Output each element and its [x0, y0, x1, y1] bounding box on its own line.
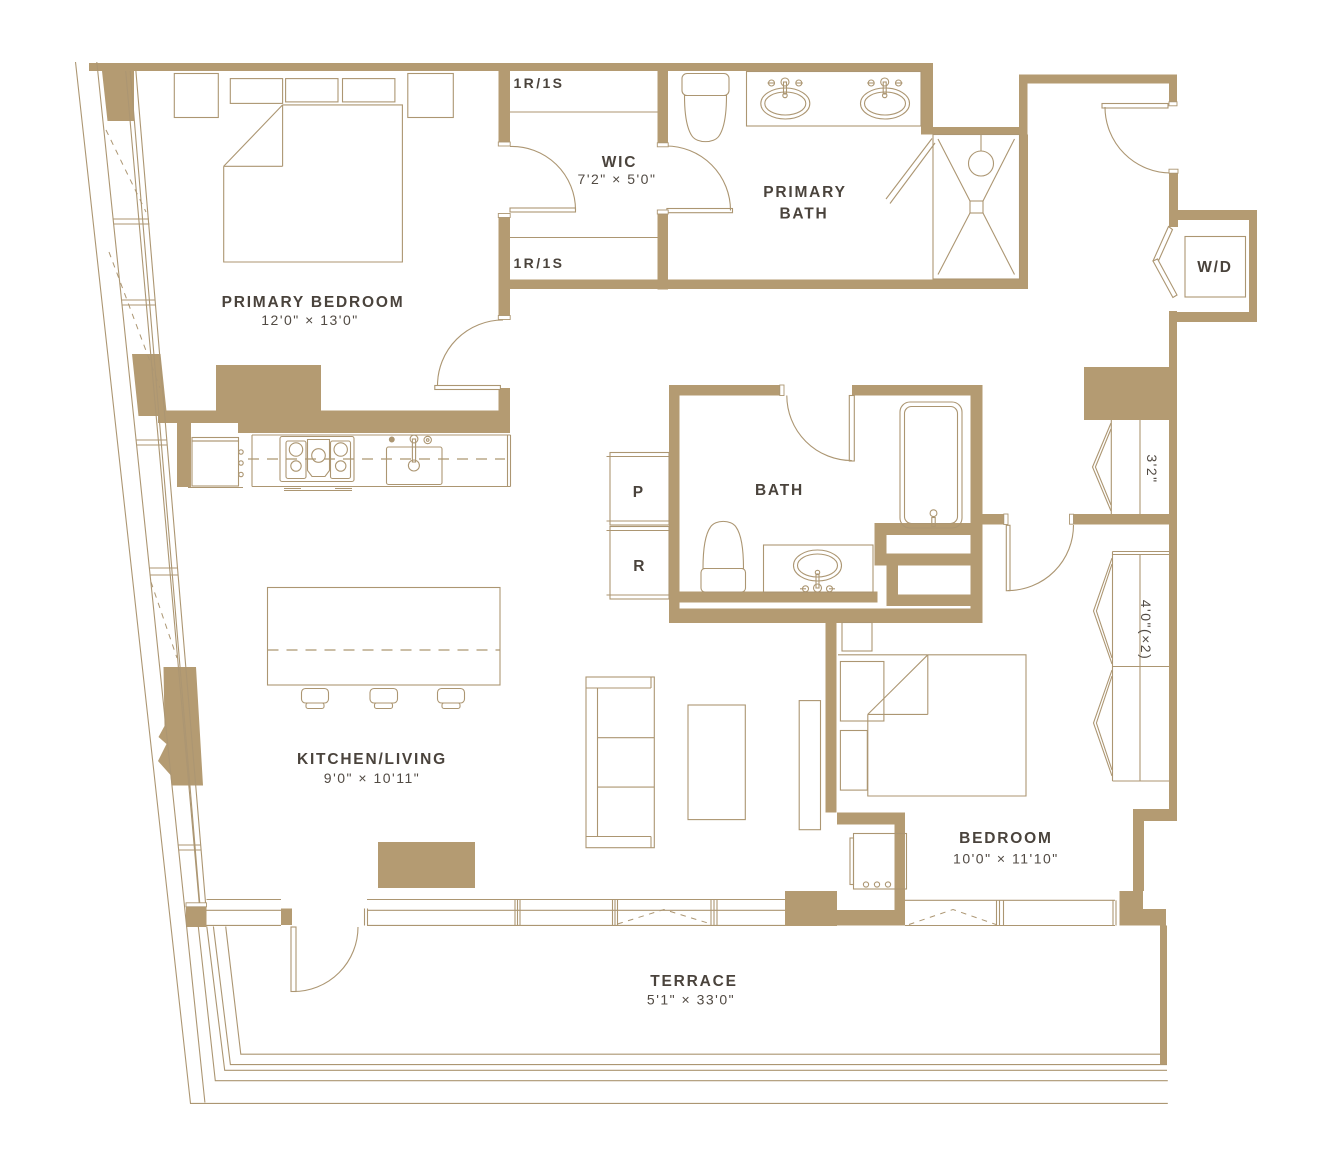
- svg-text:9'0" × 10'11": 9'0" × 10'11": [324, 770, 420, 786]
- svg-text:5'1" × 33'0": 5'1" × 33'0": [647, 992, 735, 1008]
- svg-text:PRIMARY: PRIMARY: [763, 184, 847, 201]
- svg-text:7'2" × 5'0": 7'2" × 5'0": [578, 171, 657, 187]
- svg-text:12'0" × 13'0": 12'0" × 13'0": [261, 312, 358, 328]
- svg-text:1R/1S: 1R/1S: [514, 255, 565, 271]
- svg-text:4'0"(×2): 4'0"(×2): [1138, 600, 1154, 661]
- svg-text:R: R: [633, 558, 646, 575]
- svg-text:WIC: WIC: [602, 154, 638, 171]
- svg-text:1R/1S: 1R/1S: [514, 75, 565, 91]
- svg-text:P: P: [633, 484, 645, 501]
- svg-text:PRIMARY BEDROOM: PRIMARY BEDROOM: [222, 294, 405, 311]
- svg-text:BATH: BATH: [755, 482, 804, 499]
- svg-text:3'2": 3'2": [1144, 454, 1160, 483]
- svg-text:KITCHEN/LIVING: KITCHEN/LIVING: [297, 751, 447, 768]
- svg-text:W/D: W/D: [1197, 259, 1233, 276]
- svg-text:BEDROOM: BEDROOM: [959, 830, 1053, 847]
- svg-text:BATH: BATH: [779, 206, 828, 223]
- svg-text:TERRACE: TERRACE: [650, 973, 738, 990]
- svg-text:10'0" × 11'10": 10'0" × 11'10": [953, 851, 1059, 867]
